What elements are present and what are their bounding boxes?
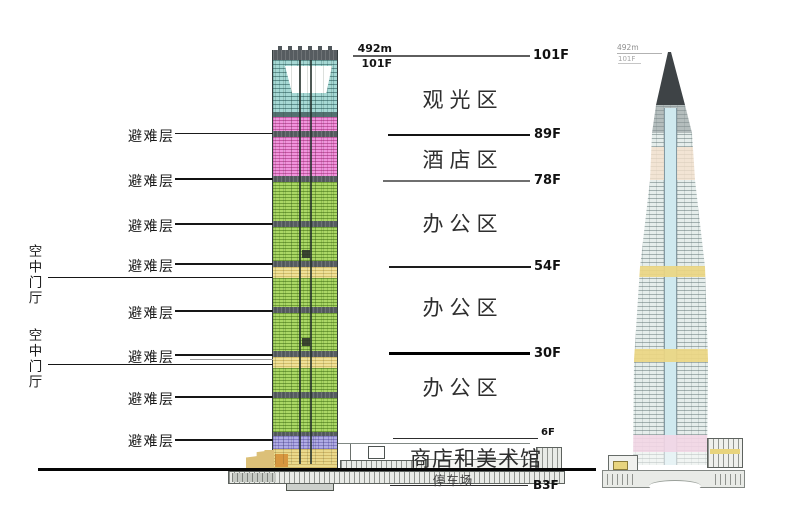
floor-mark-101f: 101F — [533, 48, 569, 63]
zone-label-hotel: 酒店区 — [398, 144, 522, 174]
sky-lobby-label-lower: 空中门厅 — [27, 328, 41, 392]
floor-line-30f — [389, 352, 530, 355]
right-tower-basement — [602, 470, 745, 488]
refuge-label-8: 避难层 — [128, 431, 175, 451]
zone-label-office-1: 办公区 — [398, 208, 522, 238]
refuge-label-4: 避难层 — [128, 256, 175, 276]
refuge-line-6b — [190, 359, 273, 360]
right-tower-top-floor-label: 101F — [618, 55, 635, 63]
floor-mark-78f: 78F — [534, 173, 561, 188]
east-annex-penthouse — [368, 446, 385, 459]
zone-label-parking: 停车场 — [418, 470, 488, 489]
right-tower-sky-lobby-upper — [600, 266, 748, 277]
right-tower-dim-line — [617, 53, 662, 54]
refuge-line-7 — [175, 396, 273, 398]
right-tower-sky-lobby-lower — [600, 349, 748, 362]
right-tower-basement-boxes-west — [607, 474, 633, 485]
core-mark-upper — [302, 250, 310, 258]
ground-line — [38, 468, 596, 471]
floor-line-6f — [393, 438, 538, 439]
floor-mark-89f: 89F — [534, 127, 561, 142]
building-section-diagram: 避难层 避难层 避难层 避难层 避难层 避难层 避难层 避难层 空中门厅 空中门… — [0, 0, 788, 509]
right-tower-basement-boxes-east — [715, 474, 742, 485]
floor-line-54f — [389, 266, 531, 268]
refuge-line-6 — [175, 354, 273, 356]
right-tower-elevation: 492m 101F — [600, 50, 748, 490]
floor-mark-30f: 30F — [534, 346, 561, 361]
floor-mark-6f: 6F — [541, 427, 555, 438]
refuge-label-2: 避难层 — [128, 171, 175, 191]
floor-line-101f — [353, 55, 530, 57]
refuge-line-4 — [175, 263, 273, 265]
sky-lobby-line-lower — [48, 364, 273, 365]
top-floor-label: 101F — [346, 57, 392, 70]
refuge-label-5: 避难层 — [128, 303, 175, 323]
right-tower-east-podium — [707, 438, 743, 468]
right-tower-height-label: 492m — [617, 43, 639, 52]
right-tower-west-podium — [608, 455, 638, 471]
refuge-label-1: 避难层 — [128, 126, 175, 146]
main-tower — [272, 50, 338, 468]
basement-west-boxes — [232, 473, 276, 482]
right-tower-basement-notch — [649, 480, 701, 492]
floor-line-78f — [383, 180, 530, 182]
tower-core — [299, 60, 312, 464]
zone-label-office-2: 办公区 — [398, 292, 522, 322]
east-annex-post-1 — [350, 444, 351, 460]
refuge-line-1 — [175, 133, 273, 134]
right-tower-east-podium-yellow — [710, 449, 740, 454]
height-label: 492m — [346, 42, 392, 55]
core-mark-lower — [302, 338, 310, 346]
sky-lobby-label-upper: 空中门厅 — [27, 244, 41, 308]
refuge-line-3 — [175, 223, 273, 225]
refuge-label-3: 避难层 — [128, 216, 175, 236]
zone-label-observation: 观光区 — [398, 84, 522, 114]
right-tower-dim-tick — [618, 63, 641, 64]
refuge-label-7: 避难层 — [128, 389, 175, 409]
floor-mark-54f: 54F — [534, 259, 561, 274]
right-tower-west-podium-yellow — [613, 461, 628, 470]
west-podium-annex — [246, 450, 274, 468]
floor-line-89f — [388, 134, 530, 136]
tower-roof-cap — [273, 50, 337, 60]
zone-label-office-3: 办公区 — [398, 372, 522, 402]
floor-mark-b3f: B3F — [533, 478, 559, 492]
right-tower-core — [664, 108, 677, 465]
sky-lobby-line-upper — [48, 277, 273, 278]
refuge-line-8 — [175, 439, 273, 441]
refuge-line-2 — [175, 178, 273, 180]
right-tower-body — [600, 50, 748, 466]
refuge-line-5 — [175, 310, 273, 312]
